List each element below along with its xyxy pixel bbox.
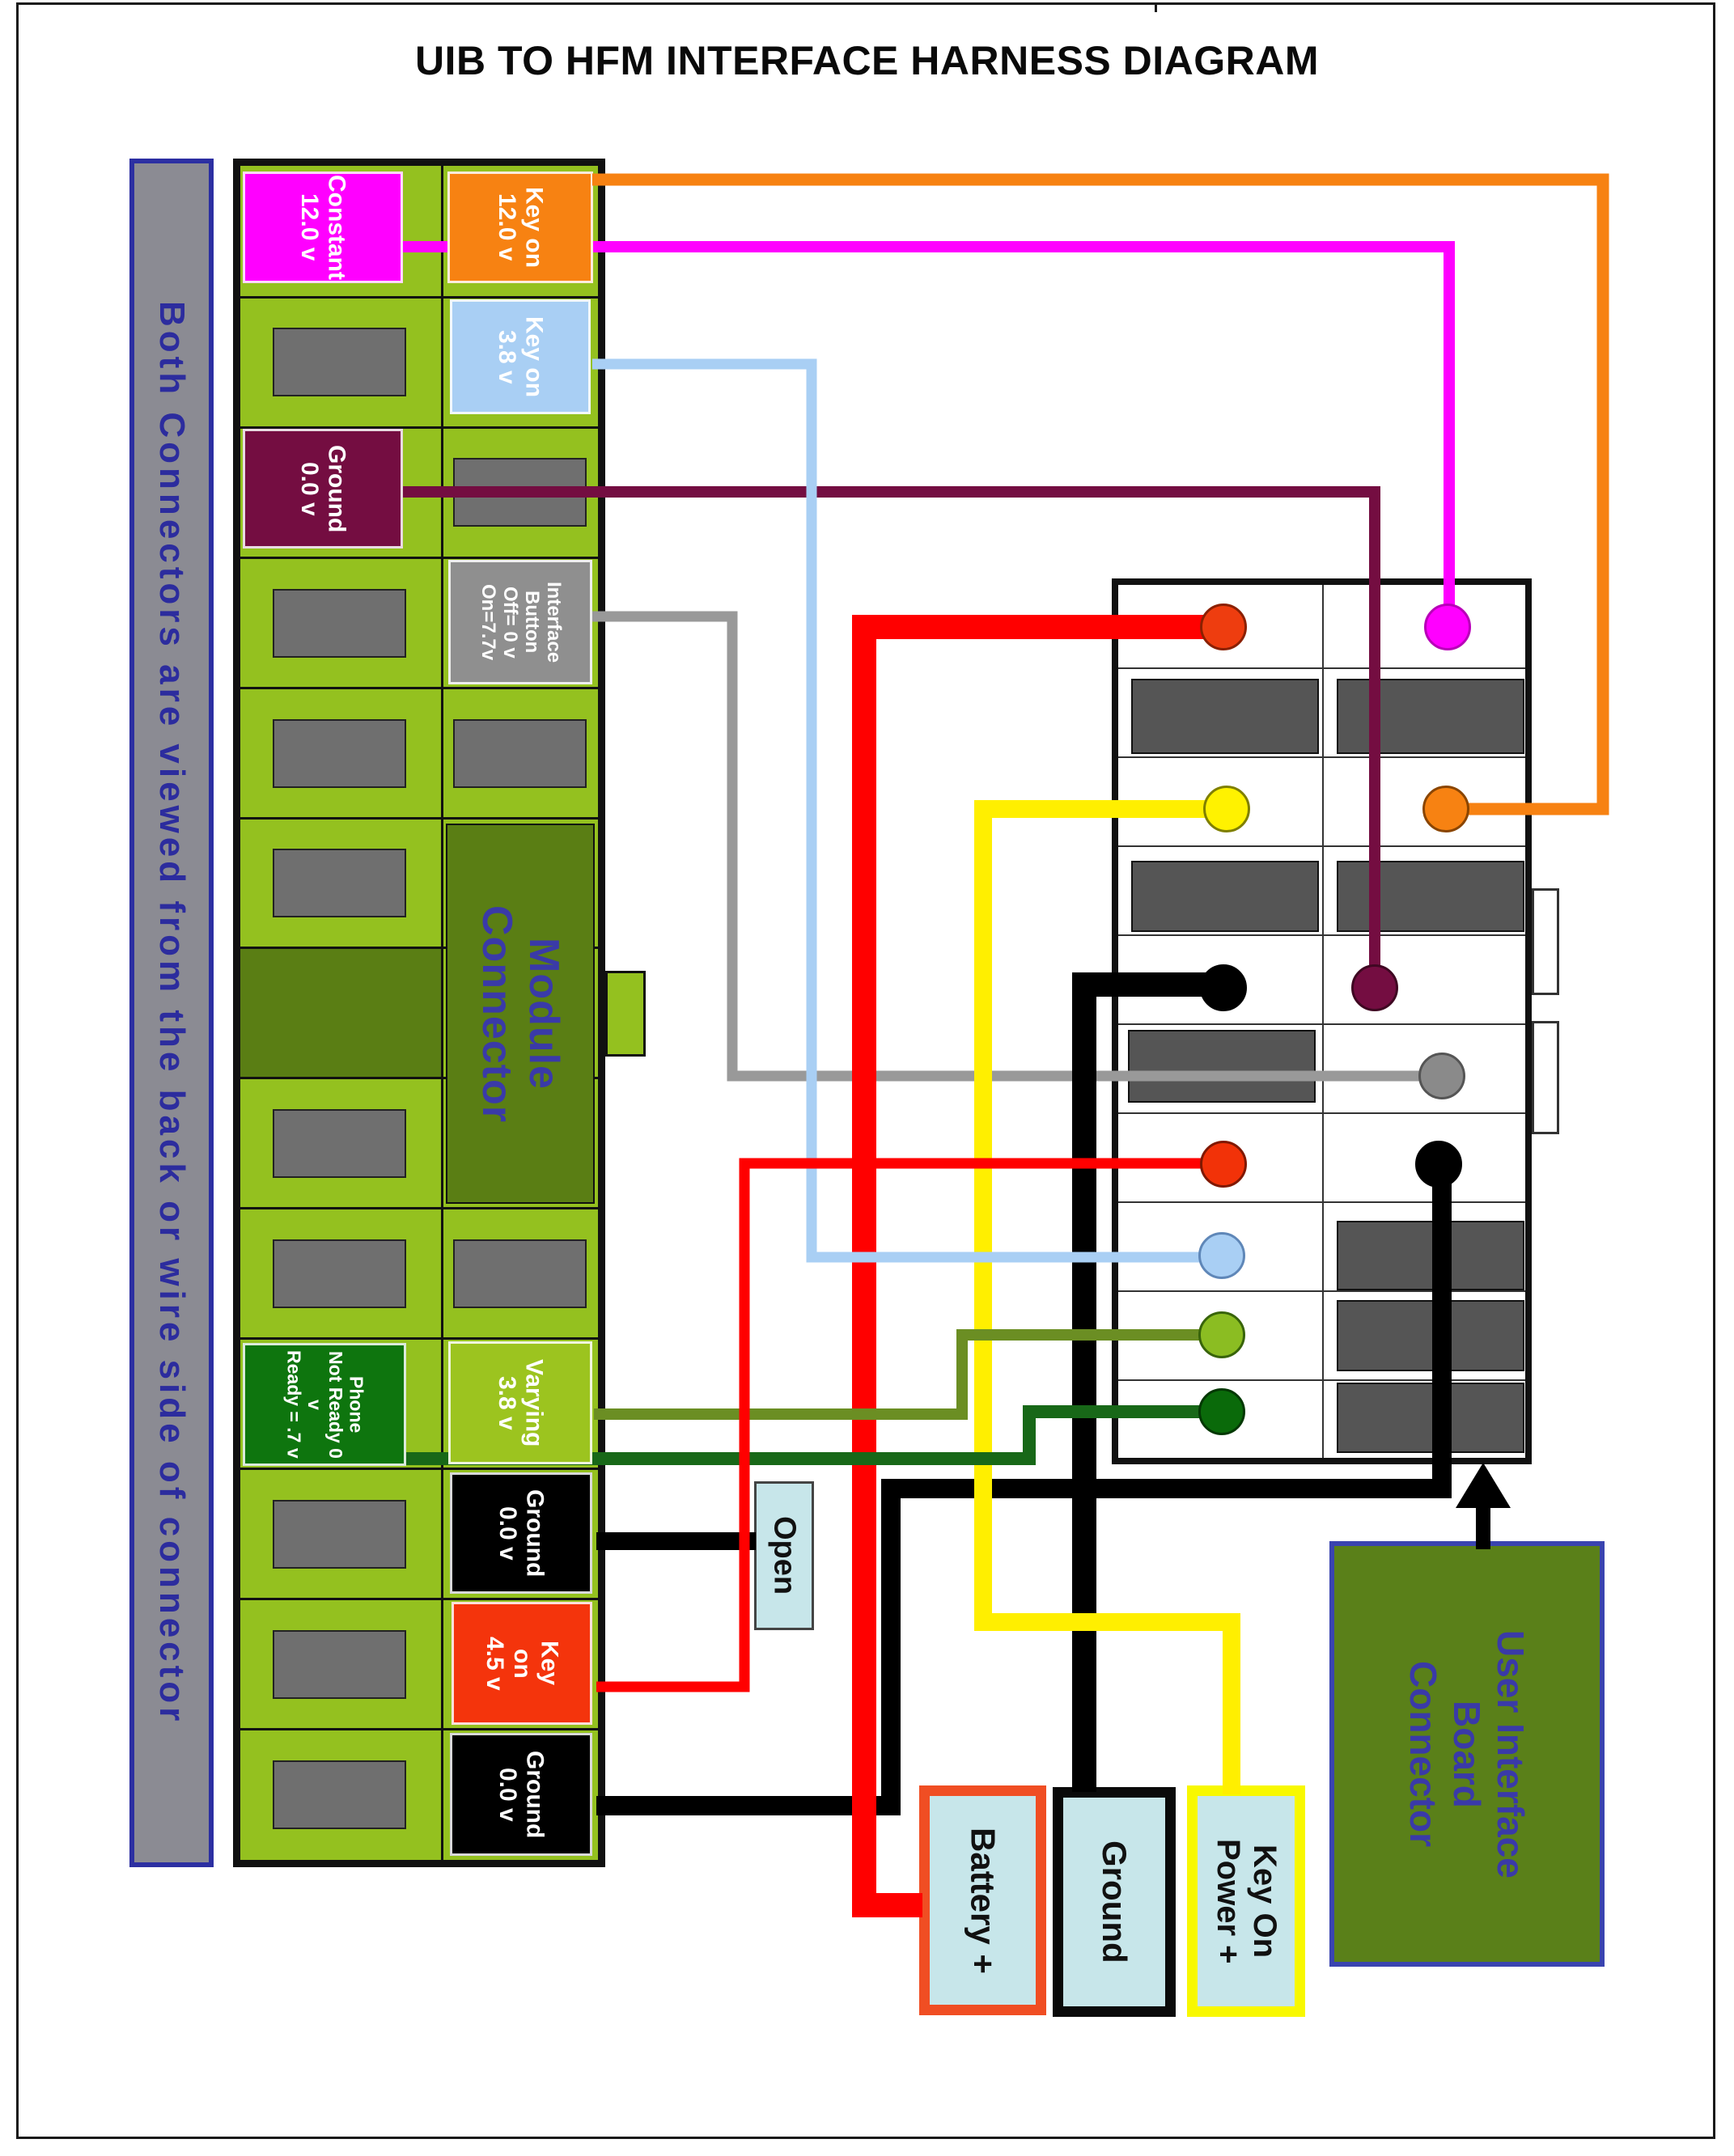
module-label-key-on-4-5v: Key on 4.5 v (452, 1602, 592, 1725)
row-line (240, 1337, 600, 1340)
uib-dot-maroon (1351, 964, 1398, 1011)
row-line (240, 1468, 600, 1470)
module-blank-cell (240, 949, 441, 1077)
uib-blocked-slot (1337, 679, 1524, 754)
uib-blocked-slot (1128, 1030, 1316, 1103)
terminal-battery-plus: Battery + (919, 1785, 1046, 2015)
row-line (240, 687, 600, 689)
row-line (240, 1207, 600, 1209)
row-line (1118, 1290, 1525, 1292)
uib-dot-black-ground (1200, 964, 1247, 1011)
row-line (1118, 756, 1525, 758)
page-top-tick (1155, 2, 1157, 12)
module-pin (453, 719, 587, 788)
module-pin (273, 1760, 406, 1829)
module-pin (273, 589, 406, 658)
uib-dot-light-blue (1198, 1232, 1245, 1279)
row-line (1118, 1201, 1525, 1203)
uib-dot-yellow (1203, 786, 1250, 832)
uib-dot-green (1198, 1311, 1245, 1358)
row-line (240, 1728, 600, 1730)
side-note: Both Connectors are viewed from the back… (129, 159, 214, 1867)
row-line (240, 1598, 600, 1600)
module-connector-divider (441, 166, 443, 1860)
module-label-phone: Phone Not Ready 0 v Ready = .7 v (243, 1343, 406, 1466)
uib-connector-name: User Interface Board Connector (1329, 1541, 1605, 1967)
module-pin (273, 1239, 406, 1308)
row-line (1118, 1023, 1525, 1025)
uib-divider (1322, 585, 1324, 1458)
row-line (240, 817, 600, 820)
row-line (1118, 667, 1525, 669)
module-label-key-on-3-8v: Key on 3.8 v (450, 299, 591, 414)
terminal-open: Open (754, 1481, 814, 1630)
module-label-ground-bottom: Ground 0.0 v (450, 1733, 592, 1856)
module-pin (273, 719, 406, 788)
terminal-ground: Ground (1053, 1787, 1176, 2017)
module-pin (273, 1500, 406, 1569)
uib-blocked-slot (1131, 861, 1319, 932)
uib-dot-magenta (1424, 604, 1471, 650)
uib-dot-gray (1418, 1053, 1465, 1099)
row-line (240, 557, 600, 559)
module-pin (273, 849, 406, 917)
row-line (1118, 1379, 1525, 1381)
module-pin (273, 1630, 406, 1699)
module-connector-tab (605, 971, 646, 1057)
row-line (240, 296, 600, 299)
uib-dot-black (1415, 1141, 1462, 1188)
module-label-ground-top: Ground 0.0 v (243, 429, 403, 549)
uib-blocked-slot (1337, 1221, 1524, 1290)
module-label-key-on-12v: Key on 12.0 v (447, 172, 593, 283)
module-label-interface-button: Interface Button Off= 0 v On=7.7v (448, 560, 592, 684)
uib-dot-orange (1422, 786, 1469, 832)
row-line (1118, 1112, 1525, 1114)
module-label-varying-3-8v: Varying 3.8 v (448, 1341, 592, 1464)
page-title: UIB TO HFM INTERFACE HARNESS DIAGRAM (0, 37, 1734, 84)
module-pin (273, 1109, 406, 1178)
uib-blocked-slot (1131, 679, 1319, 754)
uib-blocked-slot (1337, 1300, 1524, 1371)
harness-diagram-page: UIB TO HFM INTERFACE HARNESS DIAGRAM Bot… (0, 0, 1734, 2156)
module-label-ground-mid: Ground 0.0 v (450, 1472, 592, 1594)
uib-connector-tab (1532, 1021, 1559, 1134)
row-line (1118, 845, 1525, 847)
uib-connector-tab (1532, 888, 1559, 995)
terminal-key-on-power-plus: Key On Power + (1187, 1785, 1305, 2017)
uib-blocked-slot (1337, 861, 1524, 932)
module-pin (273, 328, 406, 396)
uib-dot-red (1200, 1141, 1247, 1188)
module-pin (453, 1239, 587, 1308)
module-pin (453, 458, 587, 527)
uib-blocked-slot (1337, 1383, 1524, 1453)
module-label-constant-12v: Constant 12.0 v (243, 172, 403, 283)
uib-dot-dark-green (1198, 1388, 1245, 1435)
row-line (1118, 934, 1525, 936)
uib-dot-red-orange (1200, 604, 1247, 650)
module-connector-name: Module Connector (446, 824, 595, 1204)
